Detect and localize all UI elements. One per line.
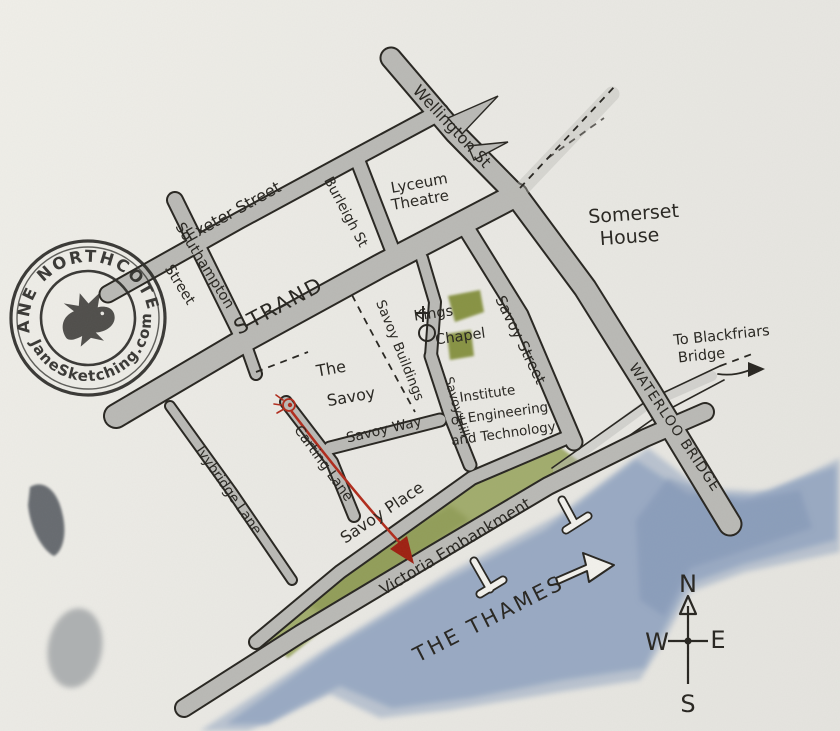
paper-texture	[0, 0, 840, 731]
watercolor-map: Wellington St Exeter Street Burleigh St …	[0, 0, 840, 731]
map-drawing: Wellington St Exeter Street Burleigh St …	[0, 0, 840, 731]
